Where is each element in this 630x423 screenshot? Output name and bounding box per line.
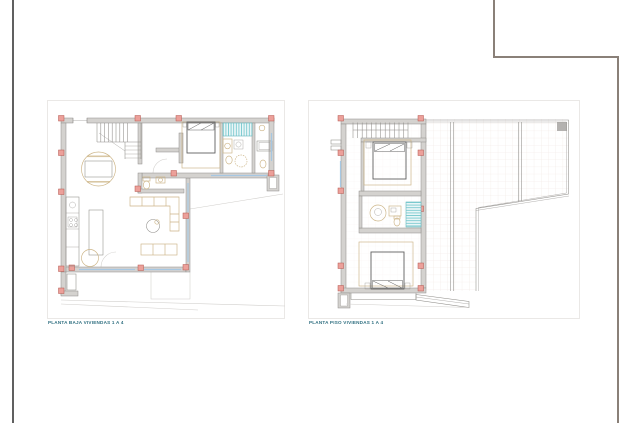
title-block-border-top xyxy=(493,0,495,56)
first-floor-plan-label: PLANTA PISO VIVIENDAS 1 A 4 xyxy=(309,320,383,325)
staircase xyxy=(97,123,141,159)
title-block-border-step xyxy=(493,56,618,58)
title-block-border-right xyxy=(617,56,619,423)
entry-ramp xyxy=(346,293,469,308)
wc-fixtures xyxy=(143,177,165,189)
bedroom-furniture xyxy=(182,122,220,168)
window-glazing xyxy=(79,133,272,270)
first-floor-plan xyxy=(309,101,581,320)
drawing-sheet: PLANTA BAJA VIVIENDAS 1 A 4 xyxy=(0,0,630,423)
ground-floor-plan xyxy=(48,101,286,320)
living-furniture xyxy=(130,197,179,255)
ground-floor-plan-box xyxy=(47,100,285,319)
kitchen-furniture xyxy=(66,197,103,267)
chimney-shaft xyxy=(557,122,567,131)
sheet-edge-rule xyxy=(12,0,14,423)
ground-floor-plan-label: PLANTA BAJA VIVIENDAS 1 A 4 xyxy=(48,320,124,325)
shower-enclosure xyxy=(223,123,252,136)
first-floor-plan-box xyxy=(308,100,580,319)
dining-table xyxy=(82,152,116,186)
shower-enclosure xyxy=(406,202,421,227)
